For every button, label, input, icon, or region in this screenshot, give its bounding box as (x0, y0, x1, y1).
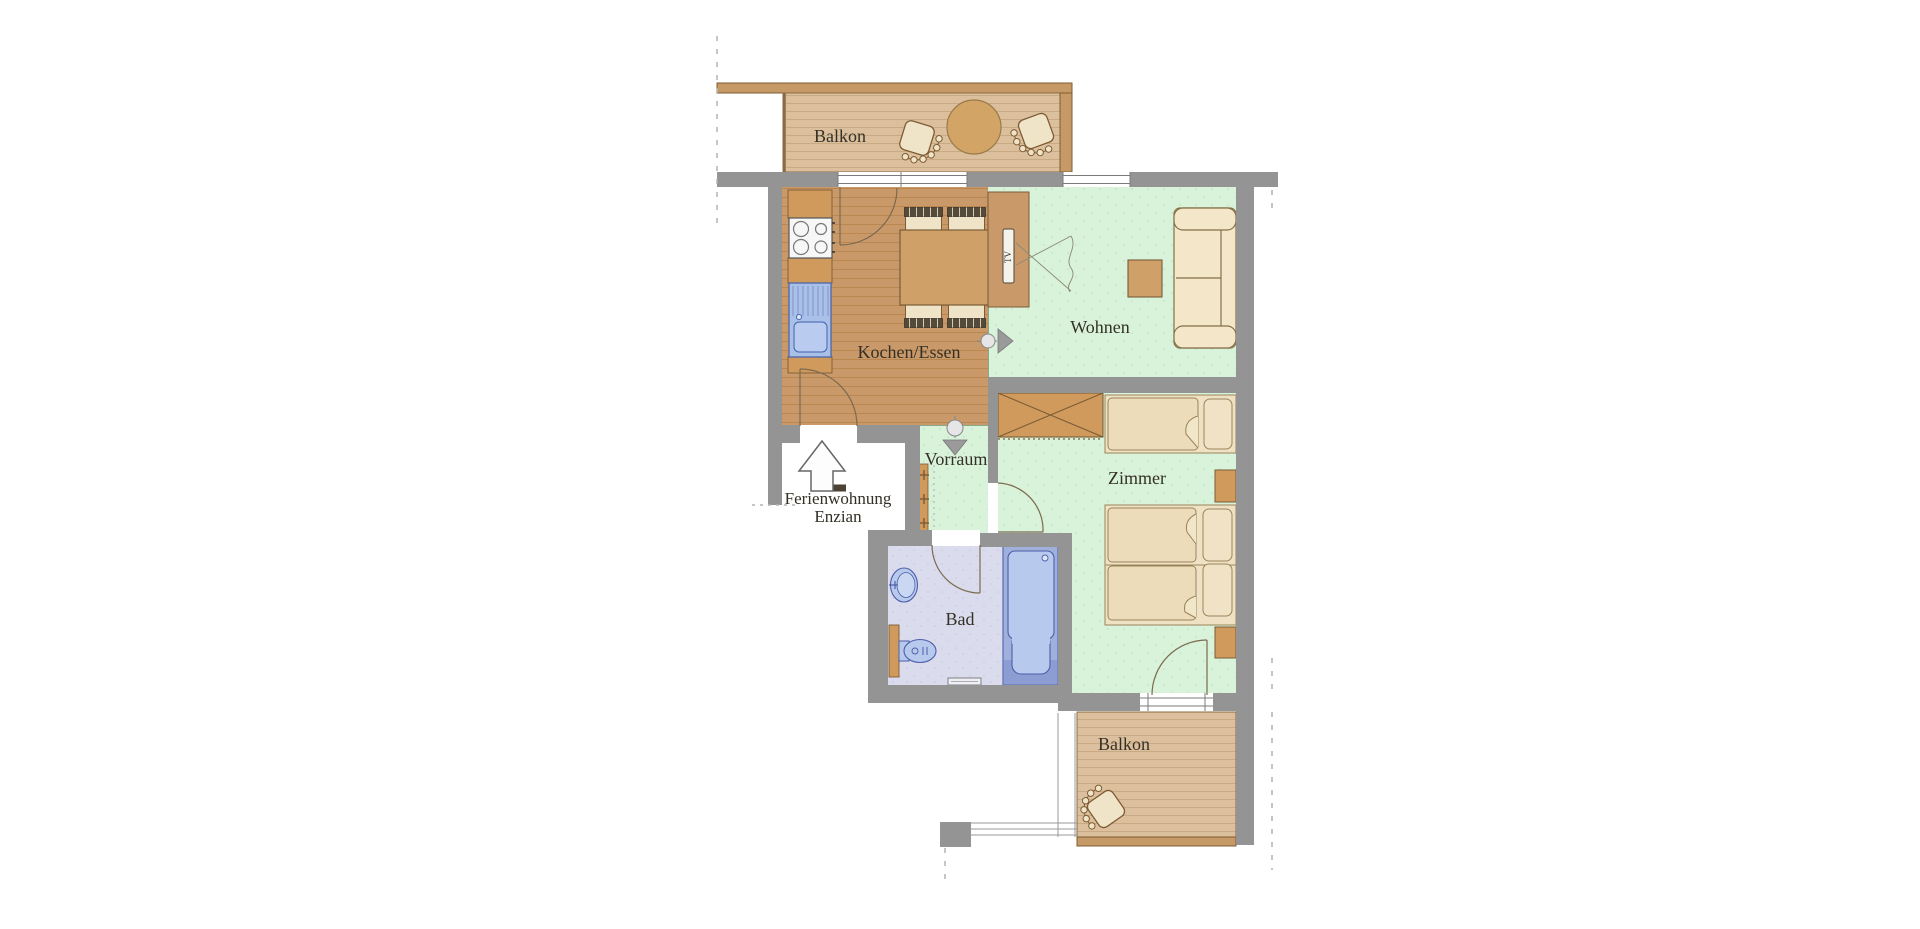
entrance-door-opening (800, 425, 857, 443)
double-bed (1105, 505, 1236, 625)
plan-title-line1: Ferienwohnung (785, 489, 892, 508)
bedroom-balcony-door (1140, 693, 1213, 711)
kitchen-counter (788, 357, 832, 373)
floor-plan-svg: TV (0, 0, 1920, 929)
entrance-arrow (799, 441, 846, 491)
kitchen-sink (789, 283, 831, 357)
living-room: TV (988, 187, 1236, 377)
top-balcony (717, 83, 1072, 172)
tv-label: TV (1003, 251, 1013, 263)
nightstand (1215, 627, 1236, 658)
stove (789, 218, 835, 258)
room-label-hallway: Vorraum (925, 449, 988, 469)
room-label-kitchen: Kochen/Essen (858, 342, 961, 362)
room-label-bathroom: Bad (946, 609, 975, 629)
bottom-balcony (971, 712, 1236, 846)
single-bed (1105, 395, 1236, 453)
wardrobe (998, 393, 1103, 439)
kitchen-counter (788, 258, 832, 283)
sofa (1174, 208, 1236, 348)
room-label-living: Wohnen (1070, 317, 1130, 337)
plan-title-line2: Enzian (814, 507, 862, 526)
dining-table (900, 230, 990, 305)
room-label-balcony-top: Balkon (814, 126, 866, 146)
room-label-bedroom: Zimmer (1108, 468, 1166, 488)
kitchen-counter (788, 190, 832, 218)
bath-mat (948, 678, 981, 685)
floor-plan-page: TV (0, 0, 1920, 929)
kitchen-balcony-window (838, 172, 967, 187)
bath-shelf (889, 625, 899, 677)
bathtub (1003, 546, 1058, 685)
nightstand (1215, 470, 1236, 502)
room-label-balcony-bottom: Balkon (1098, 734, 1150, 754)
toilet (899, 640, 936, 663)
railing-lines (971, 713, 1077, 837)
bedroom-door-opening (988, 483, 998, 532)
coffee-table (1128, 260, 1162, 297)
living-window (1063, 172, 1130, 187)
balcony-round-table (947, 100, 1001, 154)
bath-door-opening (932, 530, 980, 546)
